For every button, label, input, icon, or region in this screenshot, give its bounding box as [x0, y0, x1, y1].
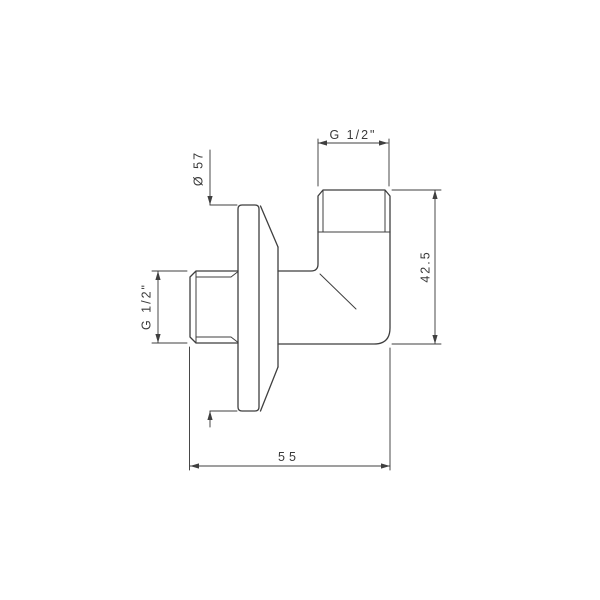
left-male-thread — [190, 271, 238, 343]
technical-drawing-canvas: G 1/2" Ø 57 G 1/2" 42.5 55 — [0, 0, 600, 600]
arrow-up-icon — [207, 411, 212, 420]
dim-height-label: 42.5 — [419, 227, 434, 307]
dim-left-thread-lines — [152, 271, 187, 343]
dim-left-thread-label: G 1/2" — [140, 267, 155, 347]
top-male-thread — [318, 190, 390, 232]
arrow-right-icon — [381, 463, 390, 468]
wall-flange-plate — [238, 205, 259, 411]
dim-flange-diameter-label: Ø 57 — [192, 129, 207, 209]
part-outlines — [190, 190, 390, 411]
arrow-left-icon — [190, 463, 199, 468]
arrow-up-icon — [432, 190, 437, 199]
flange-cone — [261, 206, 279, 411]
drawing-svg — [0, 0, 600, 600]
arrow-up-icon — [155, 271, 160, 280]
dim-flange-diameter-lines — [210, 150, 237, 427]
dim-top-thread-label: G 1/2" — [303, 128, 403, 143]
dim-height-lines — [392, 190, 441, 344]
valve-body — [278, 232, 390, 344]
arrow-down-icon — [155, 334, 160, 343]
body-edge-line — [320, 274, 356, 309]
dim-top-thread-lines — [318, 139, 389, 186]
arrow-down-icon — [207, 196, 212, 205]
arrow-down-icon — [432, 335, 437, 344]
dim-width-label: 55 — [259, 450, 319, 465]
